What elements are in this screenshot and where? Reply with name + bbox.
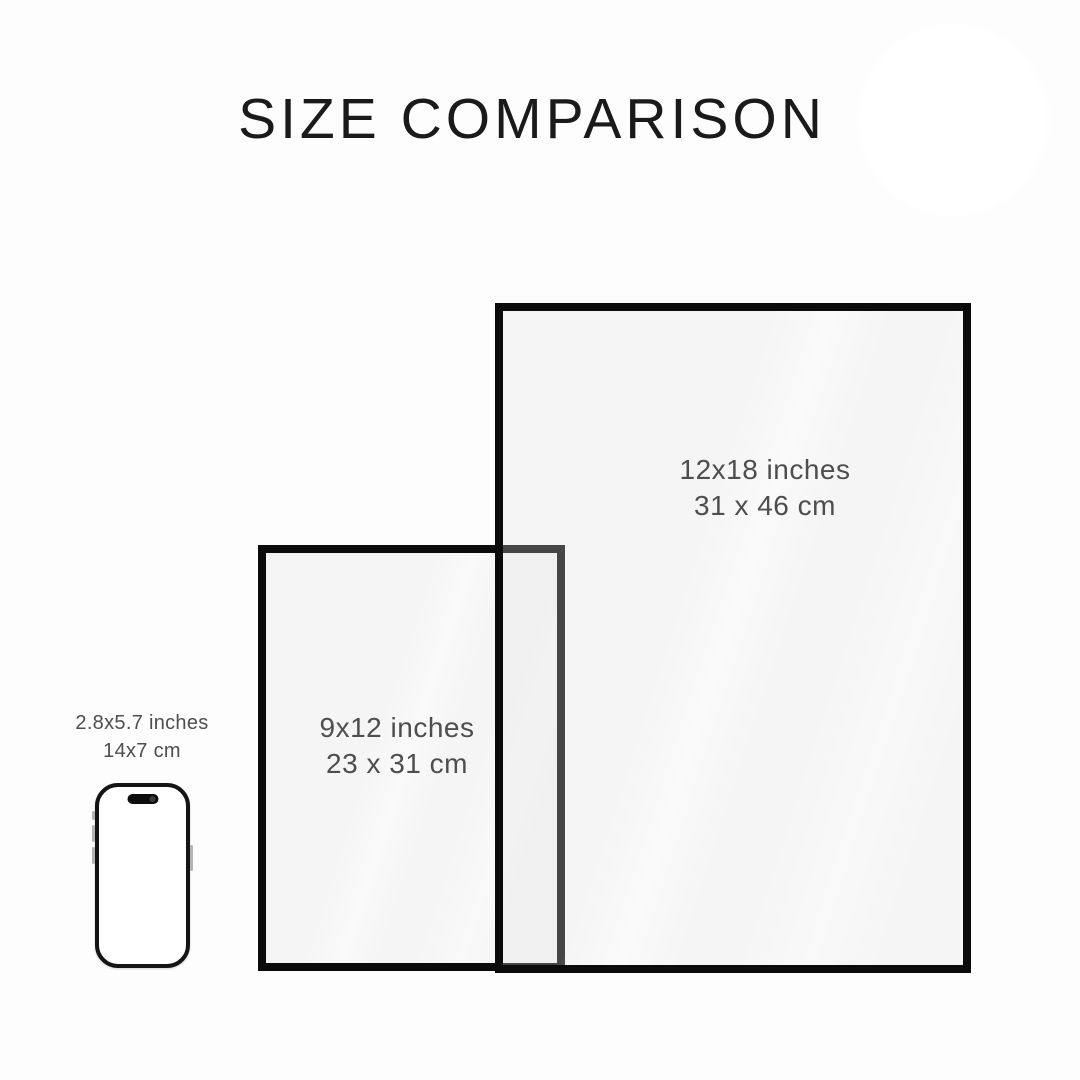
phone-illustration bbox=[95, 783, 190, 968]
size-inches-text: 9x12 inches bbox=[320, 710, 475, 746]
camera-dot-icon bbox=[149, 796, 155, 802]
volume-down-button bbox=[92, 847, 95, 864]
power-button bbox=[190, 845, 193, 871]
mute-switch bbox=[92, 811, 95, 820]
size-inches-text: 2.8x5.7 inches bbox=[75, 709, 208, 737]
glass-sheen bbox=[503, 311, 963, 965]
large-frame-size-label: 12x18 inches 31 x 46 cm bbox=[679, 452, 850, 524]
page-title: SIZE COMPARISON bbox=[0, 86, 1072, 152]
medium-frame-size-label: 9x12 inches 23 x 31 cm bbox=[320, 710, 475, 782]
large-frame bbox=[495, 303, 971, 973]
size-comparison-graphic: SIZE COMPARISON 12x18 inches 31 x 46 cm … bbox=[0, 0, 1080, 1080]
volume-up-button bbox=[92, 825, 95, 842]
phone-size-label: 2.8x5.7 inches 14x7 cm bbox=[75, 709, 208, 765]
size-cm-text: 23 x 31 cm bbox=[320, 746, 475, 782]
dynamic-island bbox=[127, 794, 158, 804]
size-cm-text: 31 x 46 cm bbox=[679, 488, 850, 524]
size-inches-text: 12x18 inches bbox=[679, 452, 850, 488]
size-cm-text: 14x7 cm bbox=[75, 737, 208, 765]
